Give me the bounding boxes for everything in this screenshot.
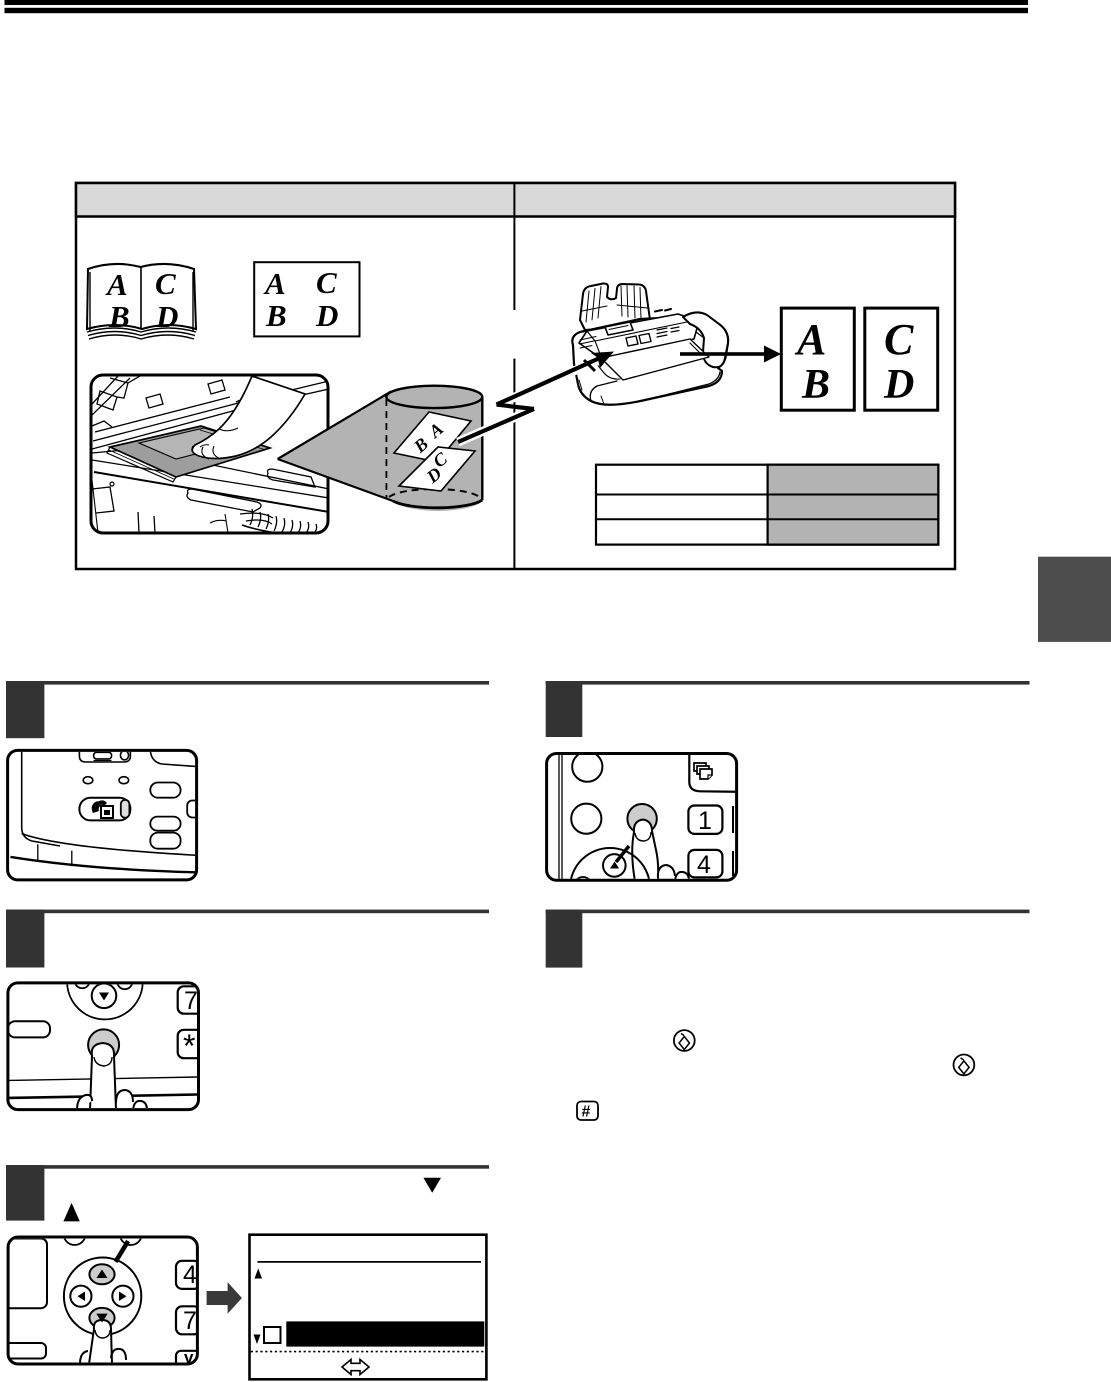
svg-text:C: C — [316, 265, 337, 300]
svg-text:B: B — [108, 299, 130, 334]
svg-text:D: D — [315, 298, 338, 333]
svg-text:v: v — [184, 1348, 194, 1367]
svg-text:7: 7 — [184, 987, 198, 1015]
svg-text:A: A — [263, 266, 286, 301]
svg-text:A: A — [105, 267, 128, 302]
svg-text:C: C — [155, 266, 176, 301]
svg-text:C: C — [884, 315, 914, 364]
svg-text:1: 1 — [698, 807, 712, 835]
svg-text:4: 4 — [697, 851, 711, 879]
svg-text:7: 7 — [183, 1307, 197, 1335]
svg-text:D: D — [155, 299, 178, 334]
svg-text:B: B — [801, 362, 830, 408]
svg-text:#: # — [582, 1104, 591, 1121]
svg-text:4: 4 — [183, 1261, 197, 1289]
svg-text:A: A — [794, 315, 826, 364]
svg-text:D: D — [883, 362, 914, 408]
svg-text:*: * — [183, 1028, 195, 1064]
svg-text:B: B — [265, 298, 287, 333]
